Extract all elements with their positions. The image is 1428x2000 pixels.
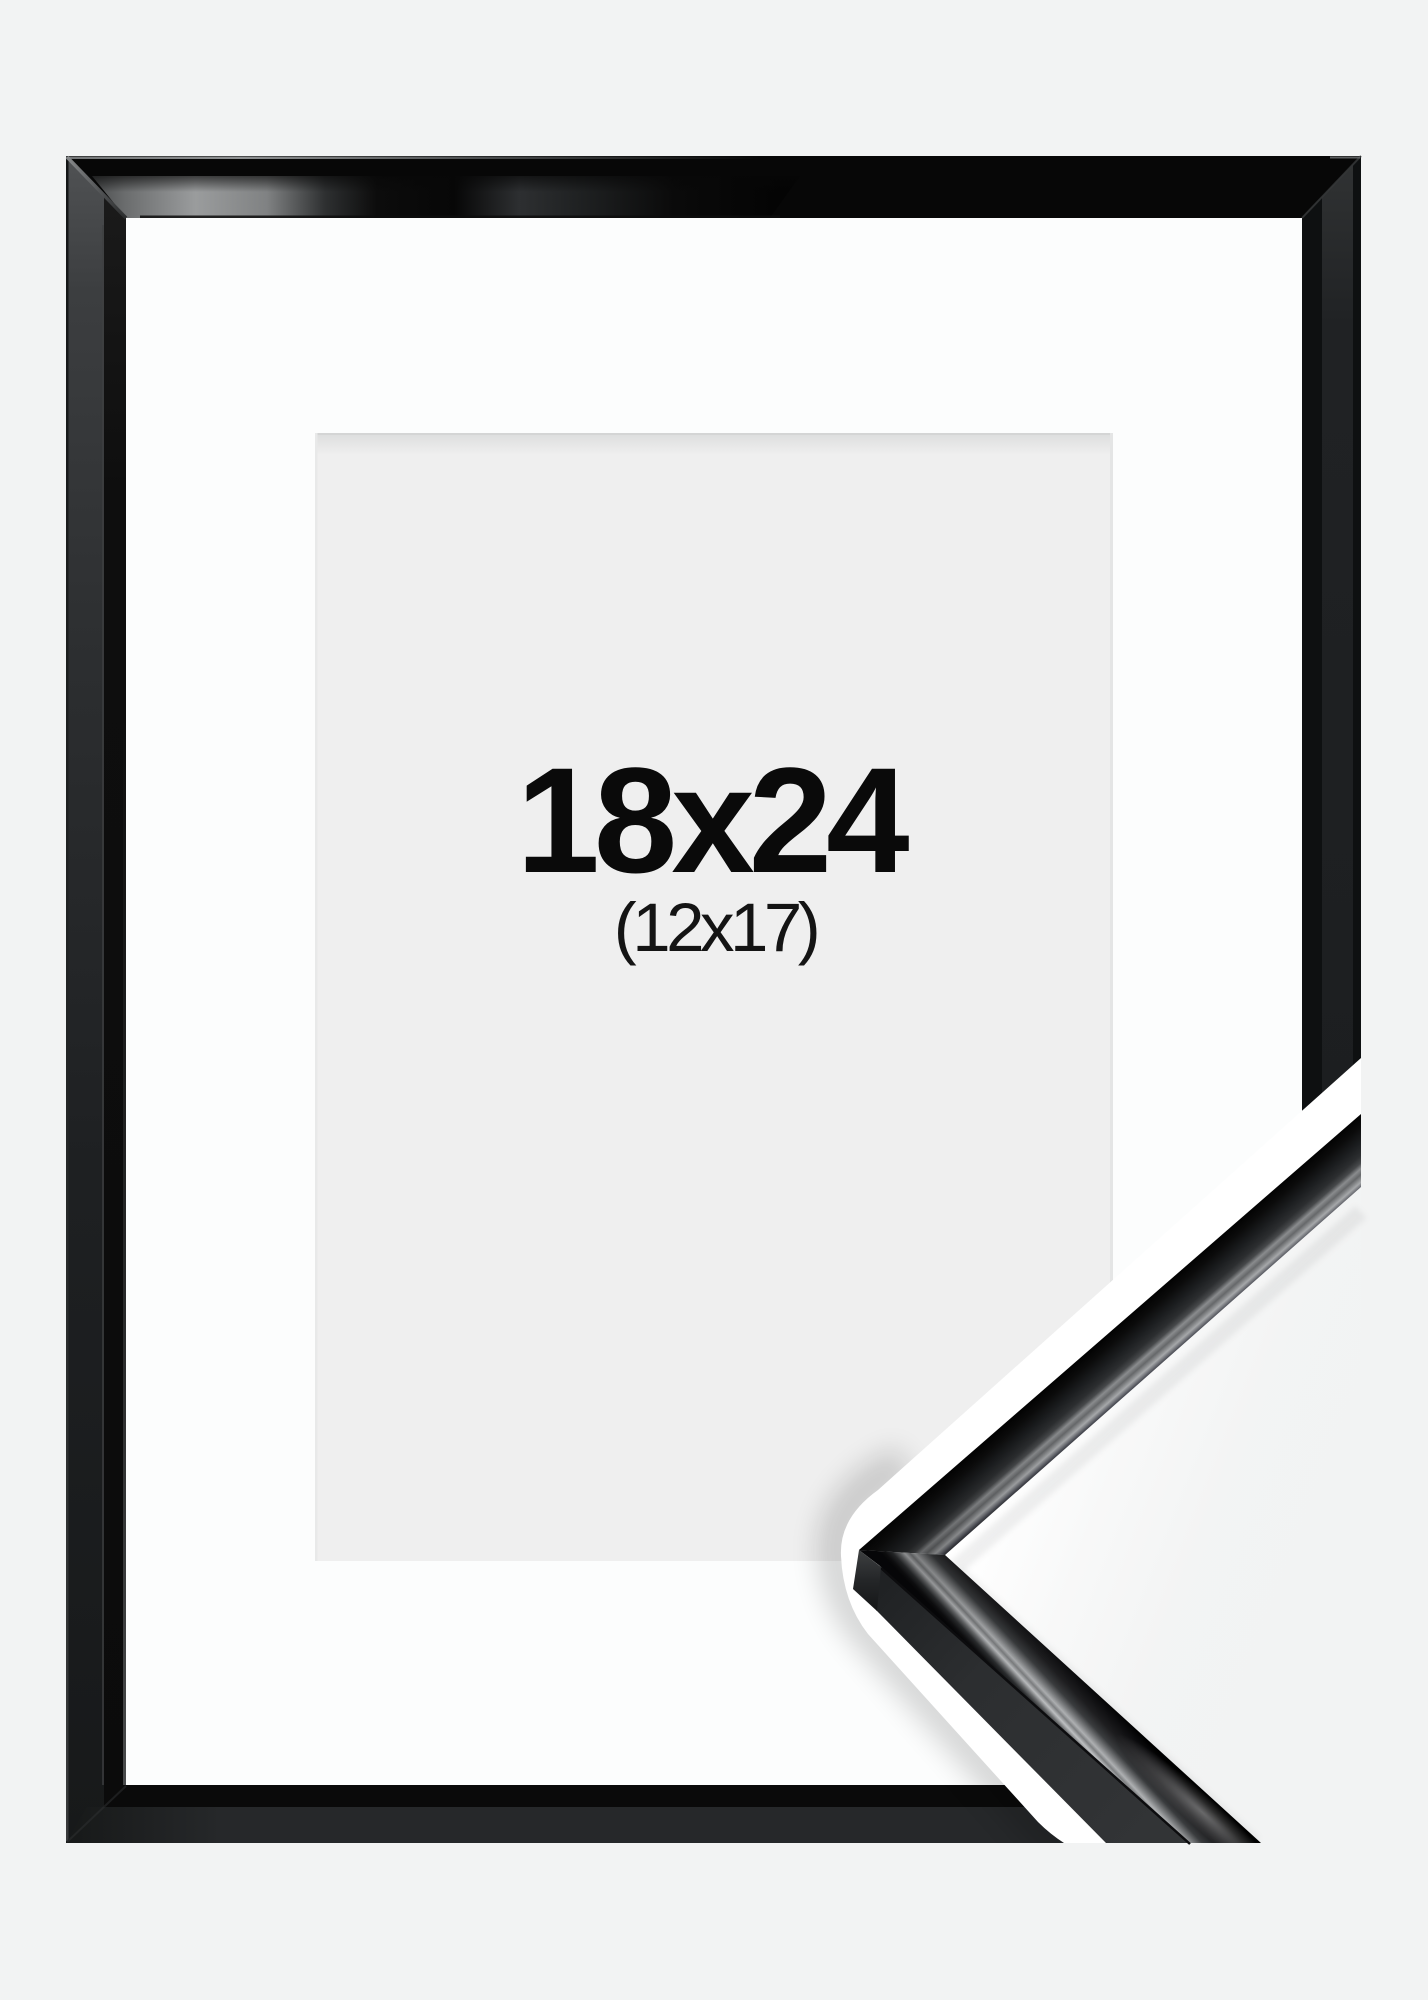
svg-text:18x24: 18x24: [516, 736, 909, 904]
svg-text:(12x17): (12x17): [614, 889, 817, 966]
